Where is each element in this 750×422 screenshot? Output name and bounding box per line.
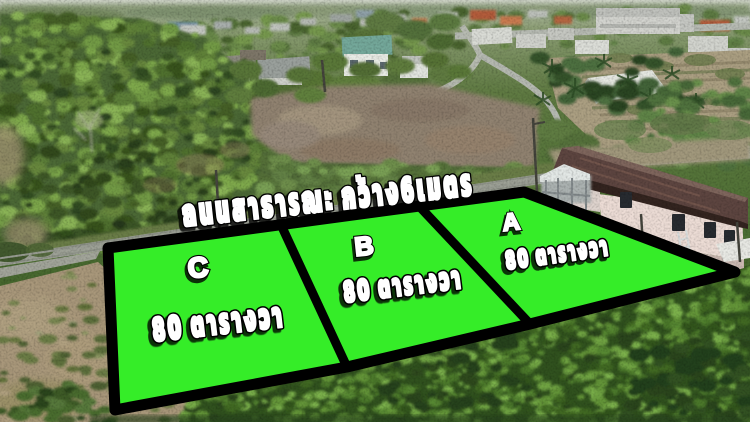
svg-text:B: B <box>353 230 375 262</box>
svg-text:A: A <box>501 208 521 237</box>
svg-text:C: C <box>186 251 209 284</box>
